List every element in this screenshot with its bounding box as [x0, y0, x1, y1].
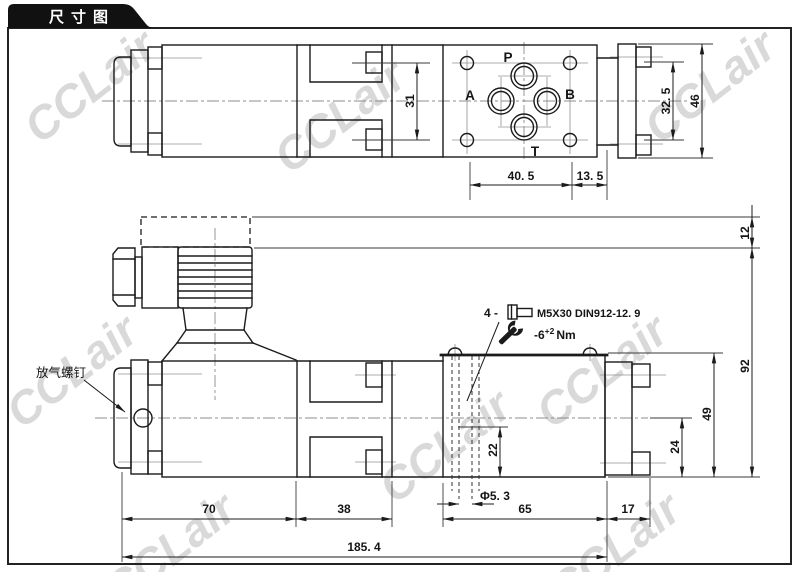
port-label-p: P [503, 50, 512, 65]
adapter-boss [366, 129, 382, 150]
torque-note: -6+2Nm [534, 326, 576, 342]
top-view: P A B T 31 32. 5 46 40. 5 [102, 42, 713, 200]
dim-text: 46 [688, 94, 702, 108]
watermark-text: CCLair [94, 481, 247, 572]
dimension-drawing-page: CCLair CCLair CCLair CCLair CCLair CCLai… [0, 0, 800, 572]
adapter-notch [310, 361, 382, 402]
dim-text: 38 [337, 502, 351, 516]
dim-text: 17 [621, 502, 635, 516]
dim-text: 12 [738, 226, 752, 240]
dim-text: 40. 5 [508, 169, 535, 183]
screw-qty: 4 - [484, 306, 498, 320]
dim-24: 24 [650, 418, 692, 477]
torque-unit: Nm [556, 328, 575, 342]
coil-ribs [178, 256, 252, 298]
wrench-icon [495, 319, 525, 349]
dim-text: 65 [518, 502, 532, 516]
side-view-outline [113, 217, 650, 499]
technical-drawing: CCLair CCLair CCLair CCLair CCLair CCLai… [0, 0, 800, 572]
dim-text: 13. 5 [577, 169, 604, 183]
mount-tab [636, 135, 651, 155]
watermark-text: CCLair [264, 48, 417, 183]
mount-tab [148, 362, 162, 385]
dim-text: 49 [700, 407, 714, 421]
dim-text: 31 [403, 94, 417, 108]
watermark-text: CCLair [634, 18, 787, 153]
torque-value: -6 [534, 328, 545, 342]
dim-text: 70 [202, 502, 216, 516]
mount-tab [148, 451, 162, 474]
connector-body [142, 247, 178, 308]
dim-text: Φ5. 3 [480, 489, 510, 503]
plug-envelope-dashed [141, 217, 250, 247]
torque-tolerance: +2 [545, 326, 555, 336]
watermark-text: CCLair [539, 481, 692, 572]
mount-tab [632, 452, 650, 475]
connector-nut [113, 248, 135, 306]
dim-text: 185. 4 [347, 540, 381, 554]
solenoid-tube [162, 361, 297, 477]
port-label-a: A [465, 88, 475, 103]
dim-text: 92 [738, 359, 752, 373]
dim-text: 22 [486, 443, 500, 457]
socket-screw-icon [508, 305, 532, 319]
connector-washer [135, 257, 142, 298]
screw-spec: M5X30 DIN912-12. 9 [537, 308, 640, 320]
drawing-title: 尺寸图 [49, 8, 115, 26]
port-label-b: B [565, 87, 575, 102]
bleed-screw-label: 放气螺钉 [36, 365, 87, 380]
dim-text: 32. 5 [659, 87, 673, 114]
port-label-t: T [531, 144, 540, 159]
dim-text: 24 [668, 440, 682, 454]
watermark-text: CCLair [14, 18, 167, 153]
coil-skirt [162, 308, 296, 361]
dim-12: 12 [252, 205, 760, 248]
dim-hole-diameter: Φ5. 3 [437, 489, 510, 504]
